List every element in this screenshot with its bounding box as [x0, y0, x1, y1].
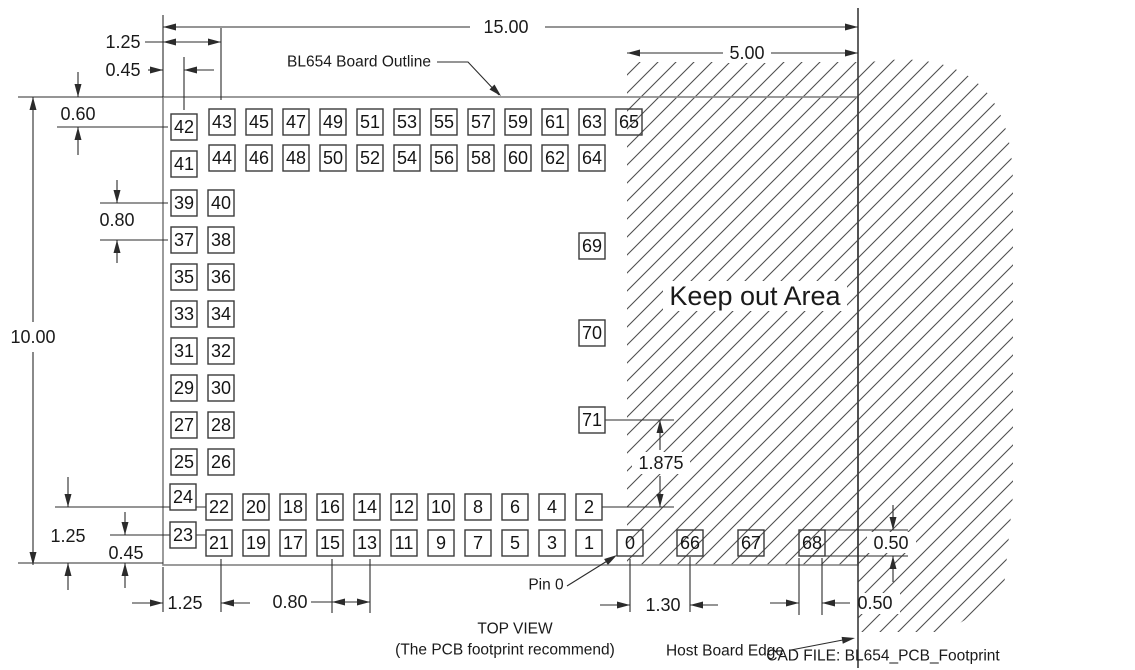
pad-27: 27: [171, 412, 197, 438]
pad-7: 7: [465, 530, 491, 556]
pad-number-19: 19: [246, 533, 266, 553]
pad-number-50: 50: [323, 148, 343, 168]
pad-62: 62: [542, 145, 568, 171]
pad-35: 35: [171, 264, 197, 290]
pad-number-28: 28: [211, 415, 231, 435]
pad-number-59: 59: [508, 112, 528, 132]
pad-10: 10: [428, 494, 454, 520]
pad-53: 53: [394, 109, 420, 135]
dim-ext-pad-spacing: 1.30: [645, 595, 680, 615]
pad-8: 8: [465, 494, 491, 520]
pad-number-10: 10: [431, 497, 451, 517]
pad-32: 32: [208, 338, 234, 364]
pad-number-1: 1: [584, 533, 594, 553]
pad-44: 44: [209, 145, 235, 171]
dim-top-row-offset: 0.60: [60, 104, 95, 124]
pad-number-7: 7: [473, 533, 483, 553]
pad-45: 45: [246, 109, 272, 135]
pad-20: 20: [243, 494, 269, 520]
pad-number-13: 13: [357, 533, 377, 553]
pad-number-62: 62: [545, 148, 565, 168]
pad-67: 67: [738, 530, 764, 556]
pad-number-31: 31: [174, 341, 194, 361]
pad-2: 2: [576, 494, 602, 520]
pad-64: 64: [579, 145, 605, 171]
pad-number-61: 61: [545, 112, 565, 132]
pad-33: 33: [171, 301, 197, 327]
pad-number-16: 16: [320, 497, 340, 517]
pad-number-40: 40: [211, 193, 231, 213]
pad-3: 3: [539, 530, 565, 556]
pad-number-29: 29: [174, 378, 194, 398]
pad-number-20: 20: [246, 497, 266, 517]
pad-14: 14: [354, 494, 380, 520]
pin0-label: Pin 0: [528, 577, 564, 594]
pad-5: 5: [502, 530, 528, 556]
pad-30: 30: [208, 375, 234, 401]
pad-number-57: 57: [471, 112, 491, 132]
pad-59: 59: [505, 109, 531, 135]
pcb-footprint-drawing: 4345474951535557596163654446485052545658…: [0, 0, 1135, 670]
dim-pad-width: 0.50: [857, 593, 892, 613]
pad-number-2: 2: [584, 497, 594, 517]
pad-31: 31: [171, 338, 197, 364]
pad-number-32: 32: [211, 341, 231, 361]
pad-9: 9: [428, 530, 454, 556]
pad-43: 43: [209, 109, 235, 135]
pad-number-46: 46: [249, 148, 269, 168]
pad-36: 36: [208, 264, 234, 290]
pad-60: 60: [505, 145, 531, 171]
pad-number-54: 54: [397, 148, 417, 168]
pad-number-14: 14: [357, 497, 377, 517]
pad-71: 71: [579, 407, 605, 433]
pad-number-17: 17: [283, 533, 303, 553]
dim-bottom-edge-offset: 0.45: [108, 543, 143, 563]
pad-16: 16: [317, 494, 343, 520]
pad-number-43: 43: [212, 112, 232, 132]
board-outline-label: BL654 Board Outline: [287, 54, 431, 71]
pad-number-0: 0: [625, 533, 635, 553]
cad-file-label: CAD FILE: BL654_PCB_Footprint: [766, 648, 1000, 665]
pad-23: 23: [170, 522, 196, 548]
pad-number-35: 35: [174, 267, 194, 287]
pad-49: 49: [320, 109, 346, 135]
pad-number-26: 26: [211, 452, 231, 472]
pad-25: 25: [171, 449, 197, 475]
pad-number-56: 56: [434, 148, 454, 168]
pad-number-70: 70: [582, 323, 602, 343]
pad-number-64: 64: [582, 148, 602, 168]
dim-pad-height: 0.50: [873, 533, 908, 553]
pad-22: 22: [206, 494, 232, 520]
pad-13: 13: [354, 530, 380, 556]
pad-number-44: 44: [212, 148, 232, 168]
pad-18: 18: [280, 494, 306, 520]
pad-number-36: 36: [211, 267, 231, 287]
pad-number-15: 15: [320, 533, 340, 553]
pad-11: 11: [391, 530, 417, 556]
dim-left-pad-pitch: 0.80: [99, 210, 134, 230]
pad-number-30: 30: [211, 378, 231, 398]
pad-number-60: 60: [508, 148, 528, 168]
pad-70: 70: [579, 320, 605, 346]
pad-number-3: 3: [547, 533, 557, 553]
pad-15: 15: [317, 530, 343, 556]
pad-54: 54: [394, 145, 420, 171]
pad-number-34: 34: [211, 304, 231, 324]
dim-bottom-col-offset: 1.25: [167, 593, 202, 613]
pad-number-63: 63: [582, 112, 602, 132]
pad-number-8: 8: [473, 497, 483, 517]
dim-right-pad-pitch: 1.875: [638, 453, 683, 473]
pad-66: 66: [677, 530, 703, 556]
pad-57: 57: [468, 109, 494, 135]
pad-number-39: 39: [174, 193, 194, 213]
pad-61: 61: [542, 109, 568, 135]
pad-number-24: 24: [173, 487, 193, 507]
pad-number-38: 38: [211, 230, 231, 250]
pad-number-37: 37: [174, 230, 194, 250]
pad-65: 65: [616, 109, 642, 135]
pad-number-66: 66: [680, 533, 700, 553]
pad-68: 68: [799, 530, 825, 556]
pad-46: 46: [246, 145, 272, 171]
pad-21: 21: [206, 530, 232, 556]
pad-26: 26: [208, 449, 234, 475]
pad-40: 40: [208, 190, 234, 216]
pad-52: 52: [357, 145, 383, 171]
pad-number-25: 25: [174, 452, 194, 472]
dim-bottom-pad-pitch: 0.80: [272, 592, 307, 612]
pad-number-55: 55: [434, 112, 454, 132]
pad-number-69: 69: [582, 236, 602, 256]
pad-38: 38: [208, 227, 234, 253]
top-view-note: (The PCB footprint recommend): [395, 642, 615, 659]
pad-number-68: 68: [802, 533, 822, 553]
pad-34: 34: [208, 301, 234, 327]
pad-56: 56: [431, 145, 457, 171]
pad-17: 17: [280, 530, 306, 556]
pad-number-45: 45: [249, 112, 269, 132]
pad-number-47: 47: [286, 112, 306, 132]
pad-number-49: 49: [323, 112, 343, 132]
pad-number-52: 52: [360, 148, 380, 168]
pad-4: 4: [539, 494, 565, 520]
dim-keepout-width: 5.00: [729, 43, 764, 63]
dim-bottom-row-offset: 1.25: [50, 526, 85, 546]
pad-42: 42: [171, 114, 197, 140]
pad-number-27: 27: [174, 415, 194, 435]
pad-19: 19: [243, 530, 269, 556]
pad-number-18: 18: [283, 497, 303, 517]
pad-number-58: 58: [471, 148, 491, 168]
keep-out-area-label: Keep out Area: [669, 281, 841, 311]
pad-number-67: 67: [741, 533, 761, 553]
top-view-label: TOP VIEW: [477, 621, 553, 638]
pad-39: 39: [171, 190, 197, 216]
pad-24: 24: [170, 484, 196, 510]
pad-12: 12: [391, 494, 417, 520]
pad-1: 1: [576, 530, 602, 556]
pad-6: 6: [502, 494, 528, 520]
dim-top-edge-offset: 0.45: [105, 60, 140, 80]
pad-29: 29: [171, 375, 197, 401]
pad-37: 37: [171, 227, 197, 253]
pad-number-33: 33: [174, 304, 194, 324]
pad-number-48: 48: [286, 148, 306, 168]
pad-number-5: 5: [510, 533, 520, 553]
footprint-svg: 4345474951535557596163654446485052545658…: [0, 0, 1135, 670]
pad-number-4: 4: [547, 497, 557, 517]
pad-51: 51: [357, 109, 383, 135]
pad-number-41: 41: [174, 154, 194, 174]
pad-number-53: 53: [397, 112, 417, 132]
pad-41: 41: [171, 151, 197, 177]
pad-28: 28: [208, 412, 234, 438]
pad-number-12: 12: [394, 497, 414, 517]
pad-69: 69: [579, 233, 605, 259]
pad-number-11: 11: [395, 533, 414, 553]
dim-overall-width: 15.00: [483, 17, 528, 37]
pad-58: 58: [468, 145, 494, 171]
dim-overall-height: 10.00: [10, 327, 55, 347]
pad-number-23: 23: [173, 525, 193, 545]
dim-top-col-offset: 1.25: [105, 32, 140, 52]
pad-number-42: 42: [174, 117, 194, 137]
pad-number-9: 9: [436, 533, 446, 553]
pad-48: 48: [283, 145, 309, 171]
pad-number-22: 22: [209, 497, 229, 517]
pad-number-51: 51: [360, 112, 380, 132]
pad-47: 47: [283, 109, 309, 135]
pad-number-65: 65: [619, 112, 639, 132]
pad-63: 63: [579, 109, 605, 135]
pad-number-21: 21: [209, 533, 229, 553]
pad-number-71: 71: [582, 410, 602, 430]
pad-number-6: 6: [510, 497, 520, 517]
pad-50: 50: [320, 145, 346, 171]
pad-55: 55: [431, 109, 457, 135]
